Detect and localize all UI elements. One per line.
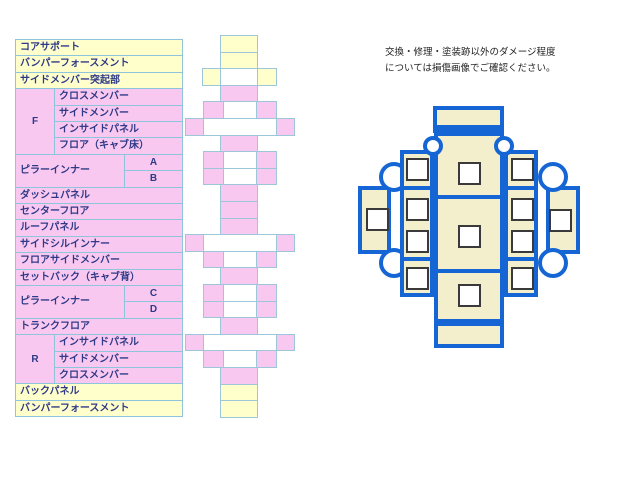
inspection-square: [511, 198, 534, 221]
part-cell: センターフロア: [15, 203, 183, 220]
skeleton-block: [203, 301, 224, 319]
skeleton-block: [220, 218, 258, 236]
part-cell: A: [124, 154, 183, 171]
skeleton-block: [276, 234, 295, 252]
inspection-square: [406, 198, 429, 221]
part-cell: コアサポート: [15, 39, 183, 56]
skeleton-block: [220, 317, 258, 335]
part-cell: クロスメンバー: [54, 367, 183, 384]
part-cell: D: [124, 301, 183, 318]
inspection-square: [406, 267, 429, 290]
inspection-square: [511, 158, 534, 181]
part-cell: サイドメンバー: [54, 351, 183, 368]
part-cell: バンパーフォースメント: [15, 400, 183, 417]
skeleton-block: [185, 234, 204, 252]
damage-note-line1: 交換・修理・塗装跡以外のダメージ程度: [385, 45, 556, 61]
crossmember-line: [504, 186, 538, 190]
part-cell: フロア（キャブ床）: [54, 137, 183, 154]
skeleton-block: [185, 118, 204, 136]
group-label-cell: ピラーインナー: [15, 154, 125, 188]
skeleton-block: [203, 350, 224, 368]
part-cell: C: [124, 285, 183, 302]
crossmember-line: [400, 257, 434, 261]
part-cell: ルーフパネル: [15, 219, 183, 236]
skeleton-block: [276, 118, 295, 136]
part-cell: クロスメンバー: [54, 88, 183, 105]
inspection-square: [549, 209, 572, 232]
skeleton-block: [220, 267, 258, 285]
inspection-square: [511, 230, 534, 253]
skeleton-block: [203, 118, 277, 136]
damage-note: 交換・修理・塗装跡以外のダメージ程度 については損傷画像でご確認ください。: [385, 45, 556, 77]
group-label-cell: R: [15, 334, 55, 384]
skeleton-block: [223, 168, 257, 186]
page: コアサポートバンパーフォースメントサイドメンバー突起部クロスメンバーサイドメンバ…: [0, 0, 640, 480]
skeleton-block: [220, 201, 258, 219]
part-cell: フロアサイドメンバー: [15, 252, 183, 269]
skeleton-block: [203, 168, 224, 186]
strut-circle: [423, 136, 443, 156]
part-cell: B: [124, 170, 183, 187]
part-cell: サイドメンバー突起部: [15, 72, 183, 89]
skeleton-block: [223, 151, 257, 169]
group-label-cell: ピラーインナー: [15, 285, 125, 319]
wheel-circle: [538, 162, 568, 192]
inspection-square: [458, 162, 481, 185]
crossmember-line: [400, 186, 434, 190]
skeleton-block: [256, 350, 277, 368]
skeleton-block: [257, 68, 277, 86]
part-cell: ダッシュパネル: [15, 187, 183, 204]
skeleton-block: [203, 234, 277, 252]
part-cell: バンパーフォースメント: [15, 55, 183, 72]
inspection-square: [458, 225, 481, 248]
damage-note-line2: については損傷画像でご確認ください。: [385, 61, 556, 77]
skeleton-block: [203, 101, 224, 119]
skeleton-block: [220, 35, 258, 53]
part-cell: サイドシルインナー: [15, 236, 183, 253]
skeleton-block: [220, 384, 258, 402]
strut-circle: [494, 136, 514, 156]
skeleton-block: [223, 301, 257, 319]
inspection-square: [511, 267, 534, 290]
skeleton-block: [220, 135, 258, 153]
skeleton-block: [203, 151, 224, 169]
skeleton-block: [223, 101, 257, 119]
skeleton-block: [220, 367, 258, 385]
part-cell: インサイドパネル: [54, 334, 183, 351]
skeleton-block: [256, 101, 277, 119]
part-cell: セットバック（キャブ背）: [15, 269, 183, 286]
skeleton-block: [220, 400, 258, 418]
skeleton-block: [256, 284, 277, 302]
skeleton-block: [185, 334, 204, 352]
group-label-cell: F: [15, 88, 55, 155]
skeleton-block: [223, 350, 257, 368]
crossmember-line: [433, 125, 504, 129]
inspection-square: [406, 158, 429, 181]
skeleton-block: [256, 151, 277, 169]
skeleton-block: [202, 68, 221, 86]
skeleton-block: [223, 251, 257, 269]
inspection-square: [406, 230, 429, 253]
skeleton-block: [256, 168, 277, 186]
crossmember-line: [504, 257, 538, 261]
skeleton-block: [203, 251, 224, 269]
skeleton-block: [203, 334, 277, 352]
skeleton-block: [256, 301, 277, 319]
part-cell: インサイドパネル: [54, 121, 183, 138]
skeleton-block: [220, 85, 258, 103]
skeleton-block: [220, 52, 258, 70]
crossmember-line: [434, 269, 504, 273]
skeleton-block: [256, 251, 277, 269]
wheel-circle: [538, 248, 568, 278]
body-rear-bumper: [434, 322, 504, 348]
part-cell: バックパネル: [15, 383, 183, 400]
skeleton-block: [276, 334, 295, 352]
skeleton-block: [203, 284, 224, 302]
inspection-square: [458, 284, 481, 307]
skeleton-block: [223, 284, 257, 302]
inspection-square: [366, 208, 389, 231]
part-cell: サイドメンバー: [54, 105, 183, 122]
crossmember-line: [434, 195, 504, 199]
part-cell: トランクフロア: [15, 318, 183, 335]
skeleton-block: [220, 68, 258, 86]
skeleton-block: [220, 184, 258, 202]
